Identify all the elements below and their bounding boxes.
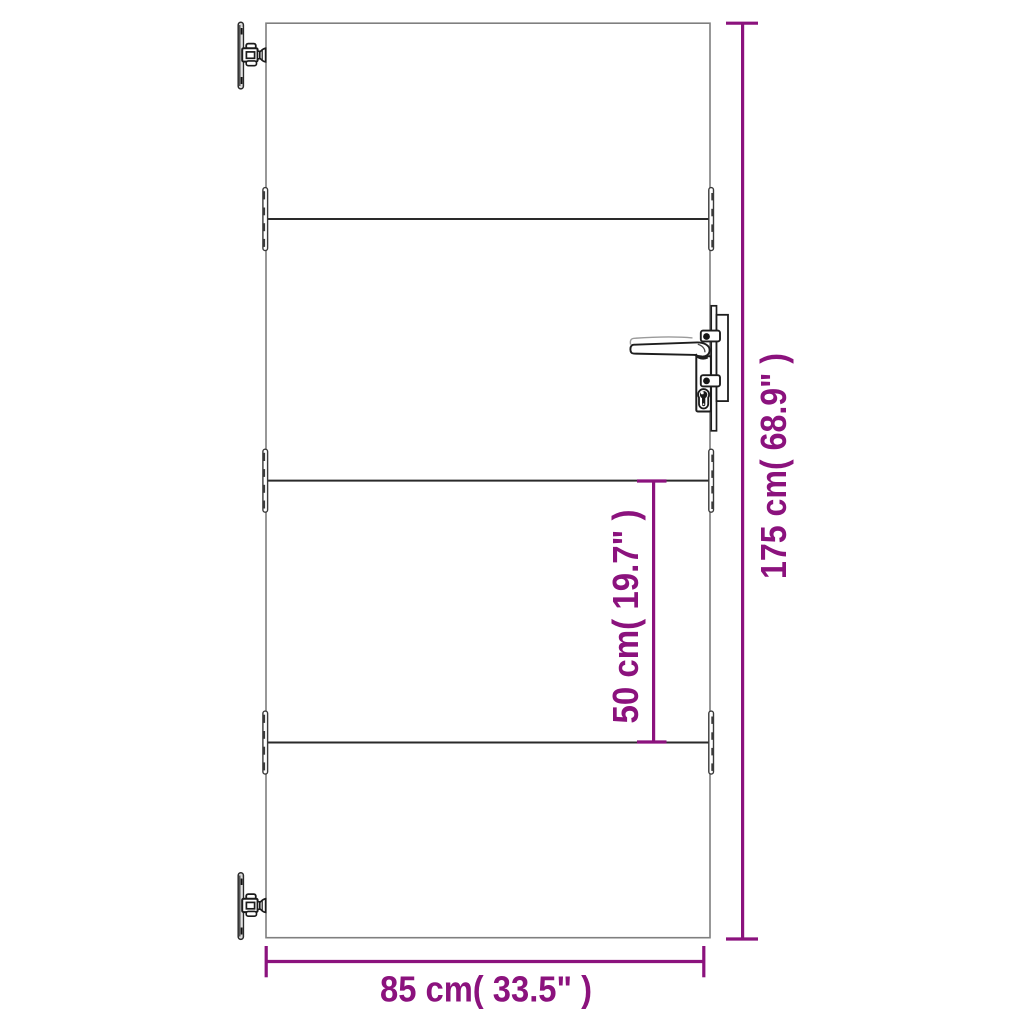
svg-text:85 cm( 33.5" ): 85 cm( 33.5" ) [380, 969, 592, 1010]
svg-text:50 cm( 19.7" ): 50 cm( 19.7" ) [605, 510, 646, 724]
svg-text:175 cm( 68.9" ): 175 cm( 68.9" ) [753, 353, 794, 579]
